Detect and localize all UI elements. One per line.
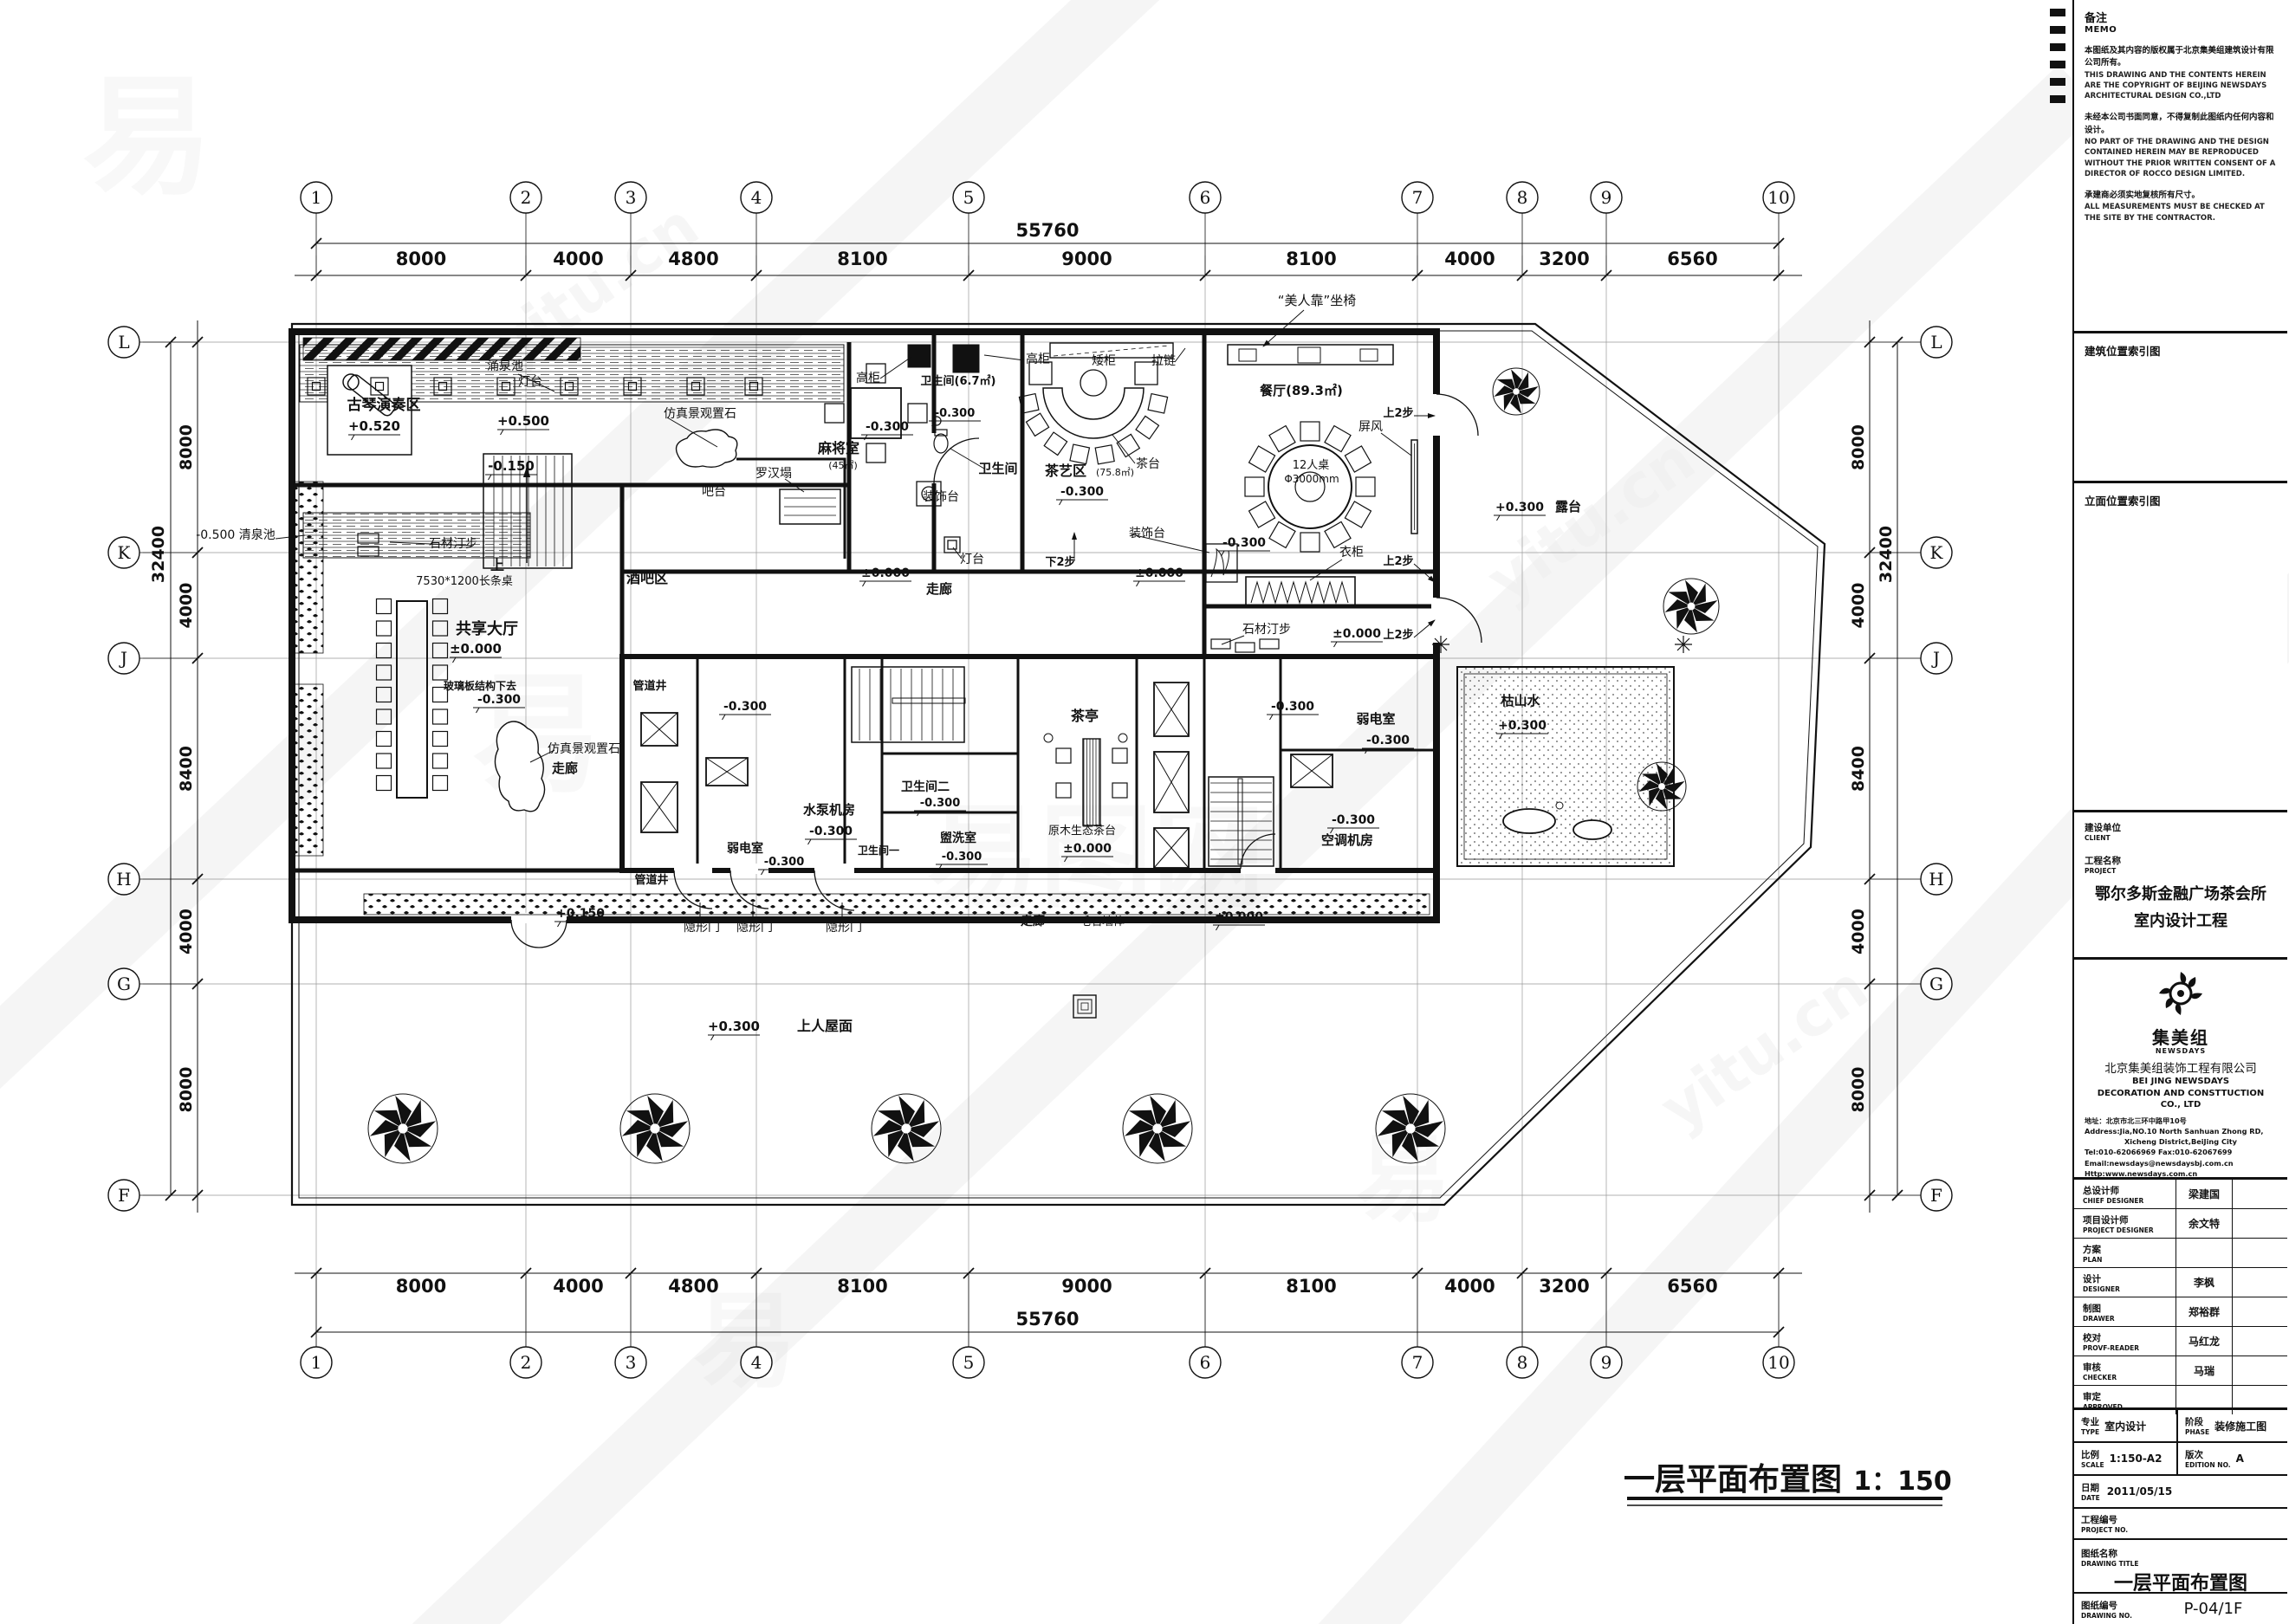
grid-bubble-label: 3 (626, 1352, 637, 1373)
plan-label-zoulang2: 走廊 (926, 581, 952, 597)
memo-title-zh: 备注 (2085, 9, 2277, 25)
plan-label-luohanta: 罗汉塌 (755, 467, 792, 481)
plan-label-wsj1: 卫生间(6.7㎡) (921, 374, 996, 388)
dim-text: 4800 (668, 249, 718, 269)
plan-label-yxm3: 隐形门 (826, 921, 862, 935)
date-value: 2011/05/15 (2107, 1485, 2173, 1498)
plan-label-wsjldr: 卫生间 (978, 461, 1017, 476)
plan-label-s2b3: 上2步 (1383, 628, 1413, 642)
project-name-line1: 鄂尔多斯金融广场茶会所 (2085, 882, 2277, 909)
title-block: 备注 MEMO 本图纸及其内容的版权属于北京集美组建筑设计有限公司所有。 THI… (2072, 0, 2287, 1624)
grid-bubble-label: 8 (1517, 1352, 1528, 1373)
grid-bubble-label: 10 (1767, 1352, 1789, 1373)
stair-core-top (852, 667, 965, 742)
grid-bubble-label: 3 (626, 187, 637, 208)
plan-label-kss: 枯山水 (1501, 693, 1540, 708)
person-label-en: CHIEF DESIGNER (2083, 1197, 2176, 1205)
dwgno-label-zh: 图纸编号 (2081, 1599, 2132, 1612)
beauty-bench (1228, 345, 1393, 365)
client-label-zh: 建设单位 (2085, 821, 2277, 834)
plan-label-chating: 茶亭 (1070, 708, 1099, 724)
plan-label-lutai: 露台 (1555, 499, 1581, 514)
people-table: 总设计师CHIEF DESIGNER梁建国项目设计师PROJECT DESIGN… (2074, 1180, 2287, 1410)
dim-text: 4000 (553, 1276, 603, 1297)
grid-bubble-label: F (118, 1185, 130, 1206)
spring-pond (303, 513, 530, 558)
plan-label-majiang: 麻将室 (817, 440, 859, 456)
titleblock-person-row: 总设计师CHIEF DESIGNER梁建国 (2074, 1180, 2287, 1209)
plan-label-chatai: 茶台 (1136, 457, 1160, 471)
plan-label-pingfeng: 屏风 (1358, 420, 1383, 434)
planter-strip (364, 894, 1430, 915)
grid-bubble-label: 2 (521, 187, 532, 208)
plan-label-lutai_lv: +0.300 (1495, 501, 1544, 514)
person-value: 余文特 (2176, 1209, 2233, 1238)
titleblock-person-row: 审核CHECKER马瑞 (2074, 1356, 2287, 1386)
dim-text: 8000 (177, 1067, 196, 1113)
watermark-text: 易 (82, 62, 212, 213)
plan-label-chayi_lv: -0.300 (1060, 485, 1104, 499)
drawing-sheet: 易易易图网易易易易yitu.cnyitu.cnyitu.cn 800040004… (0, 0, 2289, 1624)
grid-bubble-label: 1 (311, 187, 322, 208)
type-value: 室内设计 (2104, 1419, 2146, 1433)
plan-label-zsd1: 装饰台 (923, 490, 959, 504)
logo-en: NEWSDAYS (2085, 1047, 2277, 1055)
edition-value: A (2236, 1453, 2244, 1465)
tall-cabinet (908, 345, 931, 367)
person-label-en: PLAN (2083, 1256, 2176, 1264)
plan-label-shangU: 上 (490, 557, 504, 573)
plan-label-maoshi: 毛石墙体 (1080, 916, 1125, 928)
grid-bubble-label: 6 (1200, 187, 1211, 208)
project-section: 建设单位 CLIENT 工程名称 PROJECT 鄂尔多斯金融广场茶会所 室内设… (2074, 812, 2287, 960)
plan-label-ktlv: -0.300 (1332, 813, 1375, 827)
grid-bubble-label: 7 (1412, 187, 1423, 208)
person-label-zh: 设计 (2083, 1272, 2176, 1285)
plan-label-fz2: 仿真景观置石 (548, 742, 620, 756)
person-label-zh: 总设计师 (2083, 1184, 2176, 1197)
dim-text: 8000 (1849, 424, 1868, 470)
plan-label-corelv2: -0.300 (1271, 700, 1314, 714)
dim-text: 4000 (1849, 583, 1868, 629)
memo-title-en: MEMO (2085, 25, 2277, 35)
plan-label-aigui: 矮柜 (1092, 354, 1116, 368)
date-label-zh: 日期 (2081, 1481, 2100, 1494)
plan-label-gxlv: -0.300 (942, 851, 982, 864)
dim-total: 32400 (1877, 526, 1896, 583)
dim-text: 4000 (177, 583, 196, 629)
grid-bubble-label: 2 (521, 1352, 532, 1373)
person-label-en: DESIGNER (2083, 1285, 2176, 1293)
tree-icon (1376, 1094, 1445, 1163)
dim-text: 3200 (1539, 1276, 1589, 1297)
plan-label-p500: +0.500 (497, 413, 549, 429)
tree-icon (620, 1094, 690, 1163)
phase-value: 装修施工图 (2214, 1419, 2266, 1433)
dim-text: 4800 (668, 1276, 718, 1297)
plan-label-ymst: 原木生态茶台 (1048, 824, 1116, 838)
plan-label-wsj1_lv: -0.300 (935, 407, 976, 420)
plan-label-yongquanchi: 涌泉池 (487, 359, 523, 373)
dim-text: 8000 (1849, 1067, 1868, 1113)
plan-label-lalian: 拉链 (1151, 354, 1176, 368)
plan-label-changtiao: 7530*1200长条桌 (416, 574, 513, 588)
plan-label-majiang_area: (45㎡) (828, 460, 858, 471)
plan-label-wsy1: 卫生间一 (858, 844, 899, 857)
grid-bubble-label: 5 (963, 187, 975, 208)
dim-text: 4000 (177, 909, 196, 954)
sheet-title-scale: 1：150 (1853, 1466, 1952, 1497)
person-value (2176, 1239, 2233, 1267)
tree-icon (1493, 368, 1540, 415)
dwgtitle-value: 一层平面布置图 (2081, 1568, 2280, 1595)
grid-bubble-label: G (117, 974, 131, 994)
person-label-zh: 制图 (2083, 1302, 2176, 1315)
dim-text: 8000 (177, 424, 196, 470)
elev-index-section: 立面位置索引图 (2074, 483, 2287, 812)
person-label-en: DRAWER (2083, 1315, 2176, 1323)
memo1-zh: 本图纸及其内容的版权属于北京集美组建筑设计有限公司所有。 (2085, 45, 2277, 70)
grid-bubble-label: H (1929, 869, 1943, 890)
dim-text: 8100 (1286, 249, 1336, 269)
tall-cabinet (953, 345, 979, 372)
plan-label-r12: 12人桌 (1293, 459, 1330, 472)
plan-label-boli_lv: -0.300 (477, 693, 521, 707)
plan-label-ksslv: +0.300 (1498, 719, 1547, 733)
grid-bubble-label: 10 (1767, 187, 1789, 208)
person-value: 梁建国 (2176, 1180, 2233, 1208)
plan-label-yxm2: 隐形门 (736, 921, 773, 935)
plan-label-fz1: 仿真景观置石 (664, 407, 736, 421)
plan-label-dengtai1: 灯台 (518, 375, 542, 389)
arch-index-label: 建筑位置索引图 (2085, 342, 2277, 359)
plan-label-batai: 吧台 (702, 485, 726, 499)
plan-label-s2b1: 上2步 (1383, 406, 1413, 420)
plan-label-shicai2: 石材汀步 (429, 537, 477, 551)
grid-bubble-label: J (1931, 648, 1940, 669)
phase-label-zh: 阶段 (2185, 1415, 2209, 1428)
memo2-zh: 未经本公司书面同意，不得复制此图纸内任何内容和设计。 (2085, 112, 2277, 137)
plan-label-shicai3: 石材汀步 (1242, 623, 1291, 637)
screen-panel (1411, 440, 1417, 534)
memo-section: 备注 MEMO 本图纸及其内容的版权属于北京集美组建筑设计有限公司所有。 THI… (2074, 0, 2287, 333)
plan-label-sblv: -0.300 (809, 825, 853, 838)
plan-label-zoulang3: 走廊 (1021, 914, 1045, 928)
plan-label-gx_lv: ±0.000 (450, 641, 502, 657)
person-label-zh: 审定 (2083, 1390, 2176, 1403)
plan-label-gdj1: 管道井 (632, 679, 666, 693)
grid-bubble-label: L (118, 332, 129, 353)
watermark-text: 易 (1356, 1124, 1451, 1235)
dwgtitle-label-zh: 图纸名称 (2081, 1549, 2117, 1559)
company-tel: Tel:010-62066969 Fax:010-62067699 (2085, 1147, 2277, 1157)
plan-label-zoulang1: 走廊 (552, 760, 578, 776)
dim-text: 6560 (1667, 249, 1717, 269)
plan-label-roof: 上人屋面 (797, 1018, 853, 1034)
dim-text: 9000 (1061, 1276, 1112, 1297)
grid-bubble-label: 9 (1601, 1352, 1612, 1373)
person-label-en: CHECKER (2083, 1374, 2176, 1381)
plan-label-yxm1: 隐形门 (684, 921, 720, 935)
titleblock-person-row: 方案PLAN (2074, 1239, 2287, 1268)
memo2-en: NO PART OF THE DRAWING AND THE DESIGN CO… (2085, 137, 2277, 179)
person-label-zh: 审核 (2083, 1361, 2176, 1374)
grid-bubble-label: 1 (311, 1352, 322, 1373)
dim-text: 9000 (1061, 249, 1112, 269)
plan-label-chayi: 茶艺区 (1044, 463, 1086, 479)
plan-label-wsj2lv: -0.300 (920, 797, 961, 810)
plan-label-canting: 餐厅(89.3㎡) (1260, 383, 1343, 398)
titleblock-person-row: 设计DESIGNER李枫 (2074, 1268, 2287, 1297)
wardrobe (1246, 577, 1355, 606)
plan-label-yigui: 衣柜 (1339, 546, 1364, 560)
person-label-zh: 校对 (2083, 1331, 2176, 1344)
plan-label-rd2lv: -0.300 (1366, 734, 1410, 747)
memo1-en: THIS DRAWING AND THE CONTENTS HEREIN ARE… (2085, 70, 2277, 102)
person-label-zh: 项目设计师 (2083, 1213, 2176, 1226)
dim-text: 8000 (396, 249, 446, 269)
grid-bubble-label: J (119, 648, 127, 669)
plan-label-mj_lv: -0.300 (866, 420, 909, 434)
logo-cn: 集美组 (2085, 1024, 2277, 1049)
grid-bubble-label: G (1929, 974, 1943, 994)
plan-label-zsd2: 装饰台 (1129, 527, 1165, 540)
dim-text: 8100 (837, 249, 887, 269)
sheet-title: 一层平面布置图 (1624, 1462, 1842, 1498)
plan-label-corlv3: ±0.000 (1215, 910, 1263, 924)
plan-label-boli: 玻璃板结构下去 (444, 679, 516, 692)
elev-index-label: 立面位置索引图 (2085, 492, 2277, 508)
plan-label-corlv2: ±0.000 (1135, 566, 1183, 580)
plan-label-wsj2: 卫生间二 (901, 780, 950, 794)
projno-label-zh: 工程编号 (2081, 1513, 2128, 1526)
company-web: Http:www.newsdays.com.cn (2085, 1168, 2277, 1179)
plan-label-r12d: Φ3000mm (1284, 473, 1339, 485)
tree-icon (1637, 762, 1686, 811)
grid-bubble-label: H (116, 869, 131, 890)
grid-bubble-label: L (1930, 332, 1942, 353)
plan-label-gdj2: 管道井 (634, 873, 668, 887)
grid-bubble-label: 8 (1517, 187, 1528, 208)
newsdays-logo (2154, 967, 2208, 1020)
dim-text: 8100 (837, 1276, 887, 1297)
tree-icon (1123, 1094, 1192, 1163)
titleblock-person-row: 项目设计师PROJECT DESIGNER余文特 (2074, 1209, 2287, 1239)
project-label-en: PROJECT (2085, 867, 2277, 875)
company-section: 集美组 NEWSDAYS 北京集美组装饰工程有限公司 BEI JING NEWS… (2074, 960, 2287, 1180)
grid-bubble-label: K (118, 542, 132, 563)
dim-text: 8400 (177, 746, 196, 792)
edition-label-zh: 版次 (2185, 1448, 2231, 1461)
tree-icon (368, 1094, 438, 1163)
dim-text: 6560 (1667, 1276, 1717, 1297)
person-label-en: PROVF-READER (2083, 1344, 2176, 1352)
dim-text: 4000 (1444, 249, 1495, 269)
plan-label-din_lv: -0.300 (1222, 536, 1266, 550)
grid-bubble-label: K (1930, 542, 1944, 563)
plan-label-x2b: 下2步 (1045, 555, 1075, 569)
plan-label-ctlv: ±0.000 (1063, 842, 1112, 856)
company-addr-cn: 地址：北京市北三环中路甲10号 (2085, 1116, 2277, 1126)
titleblock-person-row: 制图DRAWER郑裕群 (2074, 1297, 2287, 1327)
plan-label-m150: -0.150 (488, 458, 535, 474)
grid-bubble-label: F (1930, 1185, 1942, 1206)
plan-label-guanxi: 盥洗室 (940, 831, 976, 845)
dim-total: 32400 (149, 526, 168, 583)
karesansui-garden (1457, 667, 1674, 866)
dim-text: 8100 (1286, 1276, 1336, 1297)
person-label-zh: 方案 (2083, 1243, 2176, 1256)
plan-label-pm0b: ±0.000 (1333, 627, 1381, 641)
dim-text: 8000 (396, 1276, 446, 1297)
grid-bubble-label: 4 (751, 187, 762, 208)
plan-label-ruodian2: 弱电室 (1356, 711, 1395, 727)
plan-label-rooflv: +0.300 (708, 1019, 760, 1034)
plan-label-s2b2: 上2步 (1383, 554, 1413, 568)
company-addr-en2: Xicheng District,BeiJing City (2085, 1136, 2277, 1147)
meta-section: 专业TYPE 室内设计 阶段PHASE 装修施工图 比例SCALE 1:150-… (2074, 1410, 2287, 1624)
plan-label-gongxiang: 共享大厅 (456, 619, 518, 638)
grid-bubble-label: 9 (1601, 187, 1612, 208)
person-label-en: PROJECT DESIGNER (2083, 1226, 2176, 1234)
plan-label-corelv1: -0.300 (723, 700, 767, 714)
plan-label-gaogui2: 高柜 (1026, 352, 1050, 366)
dim-total: 55760 (1015, 1309, 1079, 1330)
dim-text: 8400 (1849, 746, 1868, 792)
floor-plan-canvas: 易易易图网易易易易yitu.cnyitu.cnyitu.cn 800040004… (0, 0, 2289, 1624)
memo3-en: ALL MEASUREMENTS MUST BE CHECKED AT THE … (2085, 202, 2277, 223)
company-name-en2: DECORATION AND CONSTTUCTION (2098, 1089, 2265, 1098)
plan-label-ktjf: 空调机房 (1321, 832, 1373, 848)
plan-label-meirenkao: “美人靠”坐椅 (1278, 293, 1357, 308)
dim-text: 4000 (553, 249, 603, 269)
scale-value: 1:150-A2 (2110, 1453, 2163, 1465)
plan-label-qingquan: -0.500 清泉池 (196, 527, 276, 542)
plan-label-guqin: 古琴演奏区 (347, 396, 421, 414)
dim-text: 4000 (1849, 909, 1868, 954)
dim-total: 55760 (1015, 220, 1079, 241)
tree-icon (1663, 579, 1719, 634)
memo3-zh: 承建商必须实地复核所有尺寸。 (2085, 190, 2277, 202)
tree-icon (872, 1094, 941, 1163)
dining-table (1268, 445, 1352, 528)
dwgno-value: P-04/1F (2139, 1600, 2287, 1618)
arch-index-section: 建筑位置索引图 (2074, 333, 2287, 483)
dim-text: 3200 (1539, 249, 1589, 269)
person-value: 马红龙 (2176, 1327, 2233, 1355)
person-value: 马瑞 (2176, 1356, 2233, 1385)
person-value: 李枫 (2176, 1268, 2233, 1297)
project-name-line2: 室内设计工程 (2085, 909, 2277, 935)
company-name-en3: CO., LTD (2161, 1100, 2201, 1110)
grid-bubble-label: 6 (1200, 1352, 1211, 1373)
client-label-en: CLIENT (2085, 834, 2277, 842)
titleblock-person-row: 校对PROVF-READER马红龙 (2074, 1327, 2287, 1356)
plan-label-corlv1: ±0.000 (861, 566, 910, 580)
grid-bubble-label: 4 (751, 1352, 762, 1373)
dim-text: 4000 (1444, 1276, 1495, 1297)
plan-label-jiubaqu: 酒吧区 (626, 570, 668, 586)
project-label-zh: 工程名称 (2085, 854, 2277, 867)
plan-label-p150: +0.150 (556, 907, 605, 921)
person-value: 郑裕群 (2176, 1297, 2233, 1326)
plan-label-guqin_lv: +0.520 (348, 418, 400, 434)
plan-label-rd1lv: -0.300 (764, 856, 805, 869)
plan-label-dengtai2: 灯台 (960, 553, 984, 566)
plan-label-ruodian1: 弱电室 (727, 841, 763, 856)
company-addr-en1: Address:Jia,NO.10 North Sanhuan Zhong RD… (2085, 1126, 2277, 1136)
plan-label-shuibeng: 水泵机房 (803, 802, 855, 818)
plan-label-gaogui1: 高柜 (856, 371, 880, 385)
scale-label-zh: 比例 (2081, 1448, 2104, 1461)
watermark-text: 易 (693, 1282, 797, 1402)
company-email: Email:newsdays@newsdaysbj.com.cn (2085, 1158, 2277, 1168)
grid-bubble-label: 5 (963, 1352, 975, 1373)
grid-bubble-label: 7 (1412, 1352, 1423, 1373)
type-label-zh: 专业 (2081, 1415, 2099, 1428)
company-name-cn: 北京集美组装饰工程有限公司 (2085, 1058, 2277, 1076)
plan-label-chayi_area: (75.8㎡) (1096, 467, 1134, 478)
company-name-en1: BEI JING NEWSDAYS (2132, 1077, 2229, 1086)
